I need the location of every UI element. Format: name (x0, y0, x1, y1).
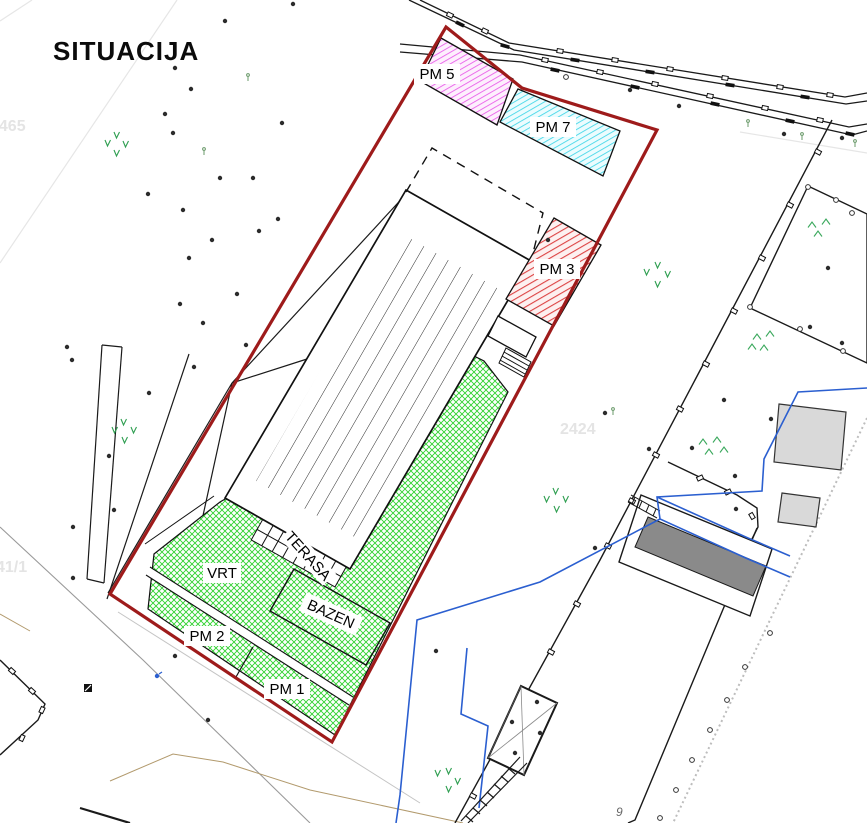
site-plan-canvas: 2465 2424 41/1 (0, 0, 867, 823)
ghost-parcel-number-2424: 2424 (560, 421, 596, 438)
label-text-pm1: PM 1 (269, 681, 304, 698)
road-guardrail-posts (446, 12, 833, 123)
label-text-pm5: PM 5 (419, 66, 454, 83)
stall-label-pm2: PM 2 (184, 626, 230, 646)
east-parcel-posts (748, 185, 855, 354)
ghost-parcel-number-41-1: 41/1 (0, 559, 27, 576)
label-text-pm2: PM 2 (189, 628, 224, 645)
point-number-9: 9 (616, 805, 623, 819)
crossed-structure (488, 686, 557, 775)
stall-label-pm3: PM 3 (534, 259, 580, 279)
stall-label-pm5: PM 5 (414, 64, 460, 84)
gray-building-large (774, 404, 846, 470)
ghost-parcel-number-2465: 2465 (0, 118, 26, 135)
label-text-vrt: VRT (207, 565, 237, 582)
stall-label-pm1: PM 1 (264, 679, 310, 699)
site-plan-drawing: 2465 2424 41/1 (0, 0, 867, 823)
gray-building-small (778, 493, 820, 527)
main-building (225, 148, 543, 569)
page-title: SITUACIJA (53, 36, 199, 66)
garden-label-vrt: VRT (203, 563, 241, 583)
manhole-symbol (84, 684, 92, 692)
label-text-pm7: PM 7 (535, 119, 570, 136)
label-text-pm3: PM 3 (539, 261, 574, 278)
stall-label-pm7: PM 7 (530, 117, 576, 137)
road-point-marker (564, 75, 569, 80)
